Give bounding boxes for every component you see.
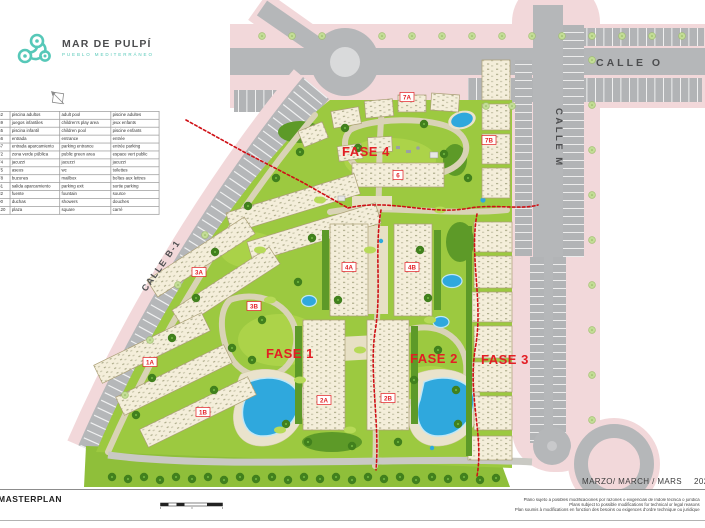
fase-4-label: FASE 4 bbox=[342, 144, 390, 159]
svg-text:2B: 2B bbox=[384, 395, 392, 402]
footer-rule-bottom bbox=[0, 520, 705, 521]
legend-row: 75aseoswctoilettes bbox=[0, 167, 159, 175]
svg-text:1B: 1B bbox=[199, 409, 207, 416]
building-label-4a: 4A bbox=[342, 263, 356, 272]
legend: 52piscina adultosadult poolpiscine adult… bbox=[0, 111, 159, 215]
legend-row: 72zona verde públicapublic green areaesp… bbox=[0, 151, 159, 159]
fase-2-label: FASE 2 bbox=[410, 351, 458, 366]
svg-text:2A: 2A bbox=[320, 397, 328, 404]
brand-text: MAR DE PULPÍ PUEBLO MEDITERRÁNEO bbox=[62, 38, 154, 57]
building-label-3a: 3A bbox=[192, 268, 206, 277]
svg-text:3B: 3B bbox=[250, 303, 258, 310]
legend-row: 120plazasquarecarré bbox=[0, 206, 159, 214]
disclaimer-fr: Plan soumis à modifications en fonction … bbox=[515, 508, 700, 513]
masterplan-page: CALLE O CALLE M CALLE B-1 FASE 1 FASE 2 … bbox=[0, 0, 705, 528]
date-year: 2022 bbox=[694, 477, 705, 486]
building-label-3b: 3B bbox=[247, 302, 261, 311]
legend-row: 90duchasshowersdouches bbox=[0, 198, 159, 206]
scale-bar bbox=[160, 501, 226, 511]
legend-row: 52piscina adultosadult poolpiscine adult… bbox=[0, 111, 159, 119]
legend-row: 74jacuzzijacuzzijacuzzi bbox=[0, 159, 159, 167]
plan-title: MASTERPLAN bbox=[0, 494, 62, 504]
building-label-4b: 4B bbox=[405, 263, 419, 272]
svg-text:7B: 7B bbox=[485, 137, 493, 144]
building-label-1a: 1A bbox=[143, 358, 157, 367]
disclaimer: Plano sujeto a posibles modificaciones p… bbox=[515, 498, 700, 513]
svg-text:6: 6 bbox=[396, 172, 400, 179]
legend-table: 52piscina adultosadult poolpiscine adult… bbox=[0, 111, 159, 215]
svg-text:4B: 4B bbox=[408, 264, 416, 271]
legend-row: 81salida aparcamientoparking exitsortie … bbox=[0, 183, 159, 191]
calle-m-label: CALLE M bbox=[553, 108, 564, 168]
fase-3-label: FASE 3 bbox=[481, 352, 529, 367]
kiosk bbox=[430, 152, 438, 158]
legend-row: 66entradaentranceentrée bbox=[0, 135, 159, 143]
footer-rule-top bbox=[0, 489, 705, 490]
calle-o-label: CALLE O bbox=[596, 57, 663, 69]
date-line: MARZO/ MARCH / MARS2022 bbox=[582, 477, 705, 486]
kiosk bbox=[338, 196, 345, 201]
legend-row: 65piscina infantilchildren poolpiscine e… bbox=[0, 127, 159, 135]
brand-logo-icon bbox=[15, 32, 57, 68]
legend-row: 82fuentefountainsource bbox=[0, 191, 159, 199]
brand-logo bbox=[15, 32, 57, 68]
svg-text:1A: 1A bbox=[146, 359, 154, 366]
brand-tagline: PUEBLO MEDITERRÁNEO bbox=[62, 52, 154, 57]
building-label-2b: 2B bbox=[381, 394, 395, 403]
legend-row: 78buzonesmailboxboîtes aux lettres bbox=[0, 175, 159, 183]
svg-text:4A: 4A bbox=[345, 264, 353, 271]
building-label-7b: 7B bbox=[482, 136, 496, 145]
north-arrow-icon bbox=[50, 90, 66, 106]
svg-text:7A: 7A bbox=[403, 94, 411, 101]
building-label-6: 6 bbox=[393, 171, 403, 180]
legend-row: 59juegos infantileschildren's play areaj… bbox=[0, 119, 159, 127]
building-label-7a: 7A bbox=[400, 93, 414, 102]
building-2a bbox=[303, 320, 345, 430]
building-label-1b: 1B bbox=[196, 408, 210, 417]
date-text: MARZO/ MARCH / MARS bbox=[582, 477, 682, 486]
masterplan-map: CALLE O CALLE M CALLE B-1 FASE 1 FASE 2 … bbox=[0, 0, 705, 528]
fase-1-label: FASE 1 bbox=[266, 346, 314, 361]
svg-text:3A: 3A bbox=[195, 269, 203, 276]
building-label-2a: 2A bbox=[317, 396, 331, 405]
legend-row: 67entrada aparcamientoparking entranceen… bbox=[0, 143, 159, 151]
brand-name: MAR DE PULPÍ bbox=[62, 38, 154, 50]
